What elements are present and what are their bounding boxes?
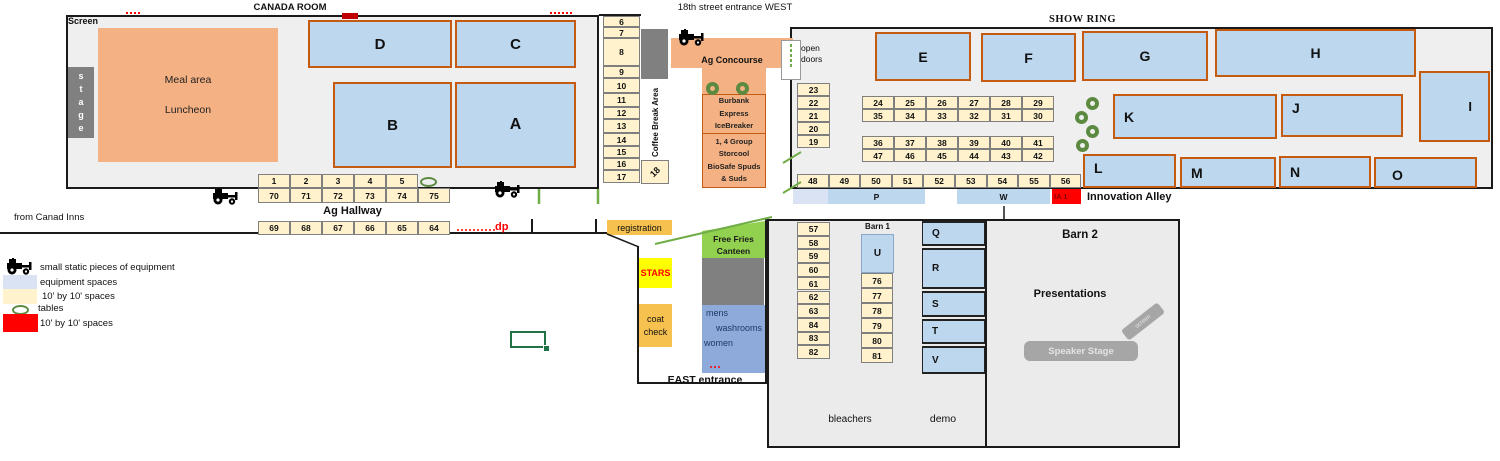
block-I: I <box>1419 71 1490 142</box>
space-cell-25: 25 <box>894 96 926 109</box>
space-cell-16: 16 <box>603 158 640 170</box>
space-cell-12: 12 <box>603 107 640 119</box>
canada-room-title: CANADA ROOM <box>230 2 350 13</box>
space-cell-5: 5 <box>386 174 418 188</box>
table-icon <box>706 82 719 95</box>
space-cell-8: 8 <box>603 38 640 66</box>
space-cell-54: 54 <box>987 174 1019 188</box>
block-M: M <box>1180 157 1276 188</box>
washrooms-label: washrooms <box>716 323 762 333</box>
space-cell-79: 79 <box>861 318 893 333</box>
space-cell-36: 36 <box>862 136 894 149</box>
space-cell-40: 40 <box>990 136 1022 149</box>
space-cell-23: 23 <box>797 83 830 96</box>
burbank-booth: Burbank Express IceBreaker <box>702 94 766 134</box>
equipment-band-lavender <box>793 189 828 204</box>
space-cell-77: 77 <box>861 288 893 303</box>
selection-handle <box>543 345 550 352</box>
legend-label: small static pieces of equipment <box>40 262 175 273</box>
space-cell-9: 9 <box>603 66 640 78</box>
stage-letter: t <box>80 83 83 96</box>
space-cell-80: 80 <box>861 333 893 348</box>
storcool-booth: 1, 4 Group Storcool BioSafe Spuds & Suds <box>702 133 766 188</box>
block-L: L <box>1083 154 1176 188</box>
space-cell-15: 15 <box>603 146 640 158</box>
space-cell-63: 63 <box>797 304 830 318</box>
space-ia1: IA 1 <box>1052 189 1081 204</box>
mens-label: mens <box>706 308 728 318</box>
block-N: N <box>1279 156 1371 188</box>
space-cell-72: 72 <box>322 188 354 203</box>
coffee-break-area-label: Coffee Break Area <box>651 75 660 170</box>
block-D: D <box>308 20 452 68</box>
space-cell-50: 50 <box>860 174 892 188</box>
stage-letter: a <box>78 96 83 109</box>
space-cell-73: 73 <box>354 188 386 203</box>
space-cell-22: 22 <box>797 96 830 109</box>
space-cell-81: 81 <box>861 348 893 363</box>
barn2-label: Barn 2 <box>1040 229 1120 241</box>
space-cell-21: 21 <box>797 109 830 122</box>
show-ring-title: SHOW RING <box>1035 14 1130 25</box>
equipment-band-w: W <box>957 189 1050 204</box>
dp-red-mark: dp <box>495 221 508 233</box>
space-cell-55: 55 <box>1018 174 1050 188</box>
space-cell-52: 52 <box>923 174 955 188</box>
space-cell-75: 75 <box>418 188 450 203</box>
space-cell-70: 70 <box>258 188 290 203</box>
space-cell-60: 60 <box>797 263 830 277</box>
block-Q: Q <box>922 221 985 246</box>
table-icon <box>420 177 437 187</box>
block-G: G <box>1082 31 1208 81</box>
space-cell-10: 10 <box>603 78 640 93</box>
space-cell-84: 84 <box>797 318 830 332</box>
space-cell-38: 38 <box>926 136 958 149</box>
table-icon <box>736 82 749 95</box>
legend-label: equipment spaces <box>40 277 117 288</box>
space-cell-61: 61 <box>797 277 830 291</box>
registration-desk: registration <box>607 220 672 235</box>
legend-label: tables <box>38 303 63 314</box>
tractor-icon <box>492 181 522 199</box>
space-cell-3: 3 <box>322 174 354 188</box>
space-cell-46: 46 <box>894 149 926 162</box>
block-V: V <box>922 346 985 374</box>
speaker-stage: Speaker Stage <box>1024 341 1138 361</box>
block-T: T <box>922 319 985 344</box>
barn-divider-wall <box>985 219 987 448</box>
space-cell-47: 47 <box>862 149 894 162</box>
equipment-band-p: P <box>828 189 925 204</box>
presentations-label: Presentations <box>1010 288 1130 300</box>
space-cell-65: 65 <box>386 221 418 235</box>
block-R: R <box>922 248 985 289</box>
free-fries-canteen: Free Fries Canteen <box>702 221 765 258</box>
east-gray-block <box>702 258 764 305</box>
meal-area: Meal area Luncheon <box>98 28 278 162</box>
legend-label: 10' by 10' spaces <box>42 291 115 302</box>
block-B: B <box>333 82 452 168</box>
demo-label: demo <box>918 413 968 425</box>
block-F: F <box>981 33 1076 82</box>
table-icon <box>1086 125 1099 138</box>
space-cell-28: 28 <box>990 96 1022 109</box>
open-doors-label: open doors <box>801 43 822 65</box>
space-cell-49: 49 <box>829 174 861 188</box>
stage: stage <box>68 67 94 138</box>
innovation-alley-label: Innovation Alley <box>1087 191 1172 203</box>
screen-label: Screen <box>68 16 98 26</box>
legend-label: 10' by 10' spaces <box>40 318 113 329</box>
block-J: J <box>1281 94 1403 137</box>
floor-plan: CANADA ROOM 18th street entrance WEST SH… <box>0 0 1500 461</box>
space-cell-62: 62 <box>797 291 830 305</box>
washrooms: mens washrooms women <box>702 305 765 373</box>
space-cell-27: 27 <box>958 96 990 109</box>
coat-check: coat check <box>639 304 672 347</box>
space-cell-14: 14 <box>603 133 640 146</box>
block-E: E <box>875 32 971 81</box>
space-cell-33: 33 <box>926 109 958 122</box>
tractor-icon <box>4 258 34 276</box>
tractor-icon <box>210 188 240 206</box>
block-S: S <box>922 291 985 317</box>
space-cell-42: 42 <box>1022 149 1054 162</box>
legend-swatch <box>3 289 37 304</box>
space-cell-64: 64 <box>418 221 450 235</box>
stage-letter: e <box>78 122 83 135</box>
space-cell-68: 68 <box>290 221 322 235</box>
stars-booth: STARS <box>639 258 672 288</box>
space-cell-59: 59 <box>797 249 830 263</box>
space-cell-41: 41 <box>1022 136 1054 149</box>
space-cell-45: 45 <box>926 149 958 162</box>
table-icon <box>1086 97 1099 110</box>
from-canad-inns-label: from Canad Inns <box>14 212 84 223</box>
space-cell-19: 19 <box>797 135 830 148</box>
space-cell-53: 53 <box>955 174 987 188</box>
barn1-label: Barn 1 <box>861 222 894 231</box>
wall-diagonal <box>607 234 639 247</box>
space-cell-56: 56 <box>1050 174 1082 188</box>
space-cell-66: 66 <box>354 221 386 235</box>
open-doors-gap <box>781 40 801 80</box>
ag-hallway-title: Ag Hallway <box>300 205 405 217</box>
selection-rectangle <box>510 331 546 348</box>
meal-area-label: Meal area <box>165 74 212 86</box>
space-cell-58: 58 <box>797 236 830 250</box>
space-cell-26: 26 <box>926 96 958 109</box>
space-cell-57: 57 <box>797 222 830 236</box>
space-cell-44: 44 <box>958 149 990 162</box>
space-cell-24: 24 <box>862 96 894 109</box>
space-cell-78: 78 <box>861 303 893 318</box>
coffee-gray-block <box>641 29 668 79</box>
space-cell-37: 37 <box>894 136 926 149</box>
space-cell-74: 74 <box>386 188 418 203</box>
space-cell-32: 32 <box>958 109 990 122</box>
women-label: women <box>704 338 733 348</box>
space-cell-17: 17 <box>603 170 640 183</box>
space-cell-43: 43 <box>990 149 1022 162</box>
bleachers-label: bleachers <box>820 414 880 425</box>
red-door-marker <box>342 13 358 19</box>
block-O: O <box>1374 157 1477 188</box>
tractor-icon <box>676 29 706 47</box>
space-cell-2: 2 <box>290 174 322 188</box>
block-U: U <box>861 234 894 273</box>
stage-letter: s <box>78 70 83 83</box>
space-cell-82: 82 <box>797 345 830 359</box>
space-cell-35: 35 <box>862 109 894 122</box>
space-cell-76: 76 <box>861 273 893 288</box>
space-cell-4: 4 <box>354 174 386 188</box>
space-cell-34: 34 <box>894 109 926 122</box>
block-C: C <box>455 20 576 68</box>
table-icon <box>1075 111 1088 124</box>
legend-swatch <box>3 314 38 332</box>
space-cell-39: 39 <box>958 136 990 149</box>
space-cell-1: 1 <box>258 174 290 188</box>
ag-concourse-label: Ag Concourse <box>701 55 763 68</box>
space-cell-67: 67 <box>322 221 354 235</box>
stage-letter: g <box>78 109 84 122</box>
space-cell-29: 29 <box>1022 96 1054 109</box>
space-cell-83: 83 <box>797 332 830 346</box>
table-icon <box>1076 139 1089 152</box>
space-cell-6: 6 <box>603 16 640 27</box>
space-cell-13: 13 <box>603 119 640 133</box>
space-cell-69: 69 <box>258 221 290 235</box>
east-box-right-wall <box>765 219 767 384</box>
space-cell-18: 18 <box>641 160 669 184</box>
space-cell-7: 7 <box>603 27 640 38</box>
west-entrance-title: 18th street entrance WEST <box>660 2 810 13</box>
block-K: K <box>1113 94 1277 139</box>
space-cell-11: 11 <box>603 93 640 107</box>
block-A: A <box>455 82 576 168</box>
space-cell-71: 71 <box>290 188 322 203</box>
east-entrance-title: EAST entrance <box>650 374 760 386</box>
space-cell-48: 48 <box>797 174 829 188</box>
block-H: H <box>1215 29 1416 77</box>
space-cell-51: 51 <box>892 174 924 188</box>
space-cell-31: 31 <box>990 109 1022 122</box>
space-cell-20: 20 <box>797 122 830 135</box>
space-cell-30: 30 <box>1022 109 1054 122</box>
luncheon-label: Luncheon <box>165 104 211 116</box>
legend-swatch <box>3 275 37 289</box>
